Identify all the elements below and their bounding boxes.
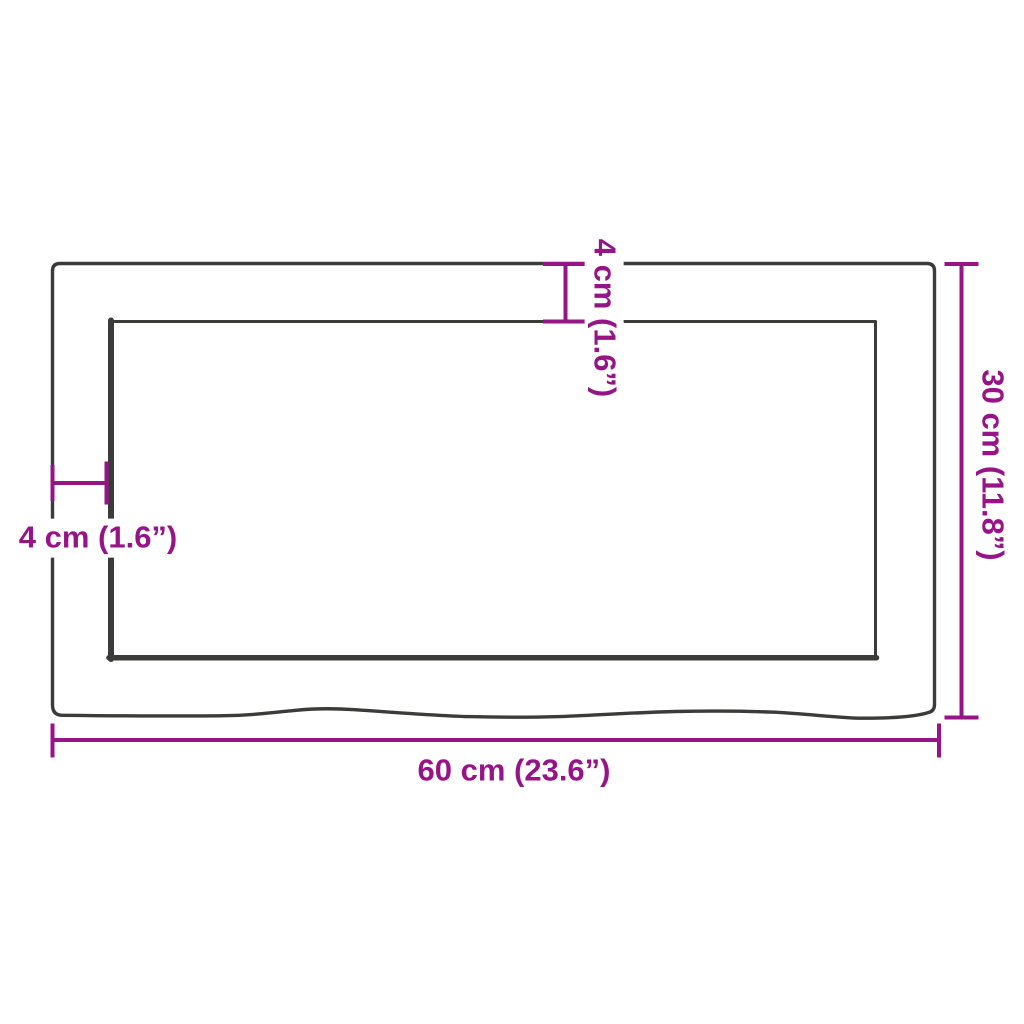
board-outline-group [53, 264, 935, 719]
top-offset-label: 4 cm (1.6”) [585, 235, 624, 402]
board-inner-edge [110, 322, 876, 659]
board-outer-edge [53, 264, 935, 719]
width-label: 60 cm (23.6”) [414, 752, 615, 791]
left-offset-label: 4 cm (1.6”) [15, 519, 182, 558]
diagram-canvas [0, 0, 1024, 1024]
left-offset-dimension [53, 462, 109, 505]
dimension-lines-group [53, 264, 979, 758]
height-label: 30 cm (11.8”) [973, 365, 1012, 564]
dimension-diagram: 4 cm (1.6”) 4 cm (1.6”) 30 cm (11.8”) 60… [0, 0, 1024, 1024]
top-offset-dimension [543, 264, 587, 322]
